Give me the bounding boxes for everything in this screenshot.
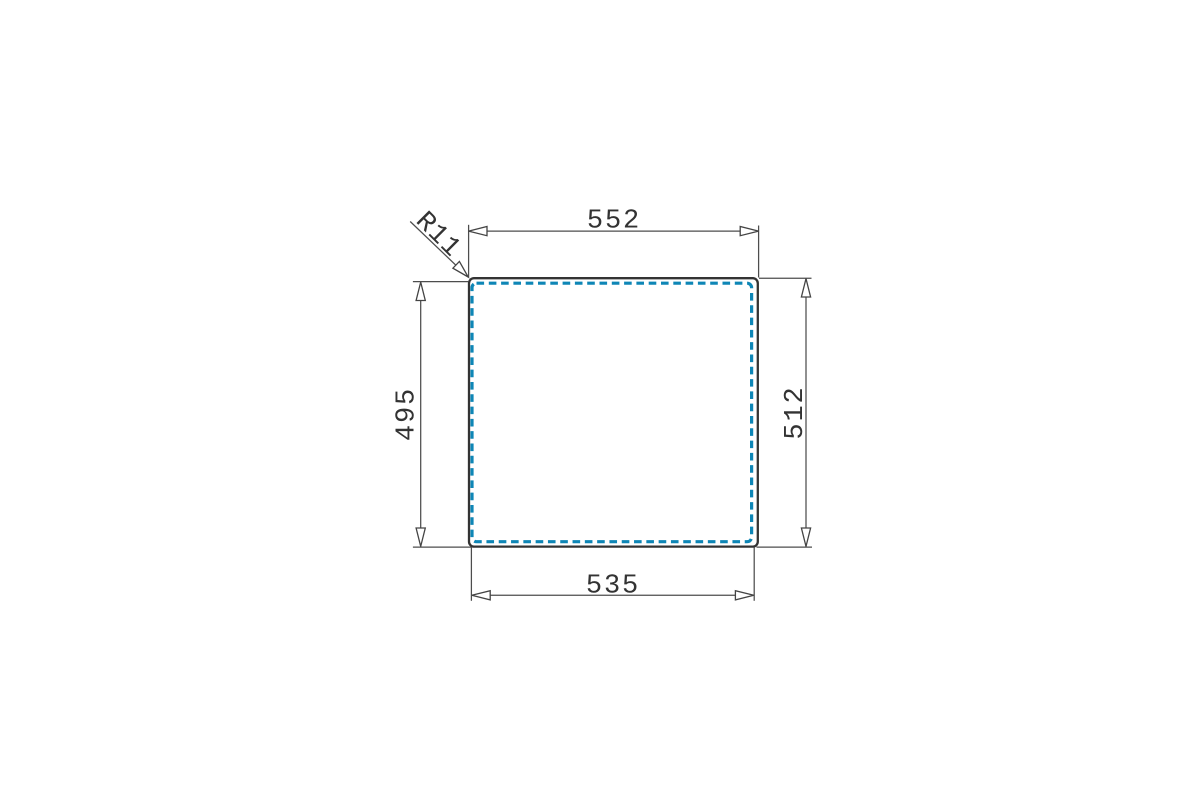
svg-text:512: 512 <box>781 385 811 439</box>
svg-text:495: 495 <box>393 387 423 441</box>
svg-text:552: 552 <box>587 206 641 236</box>
svg-text:535: 535 <box>586 571 640 601</box>
